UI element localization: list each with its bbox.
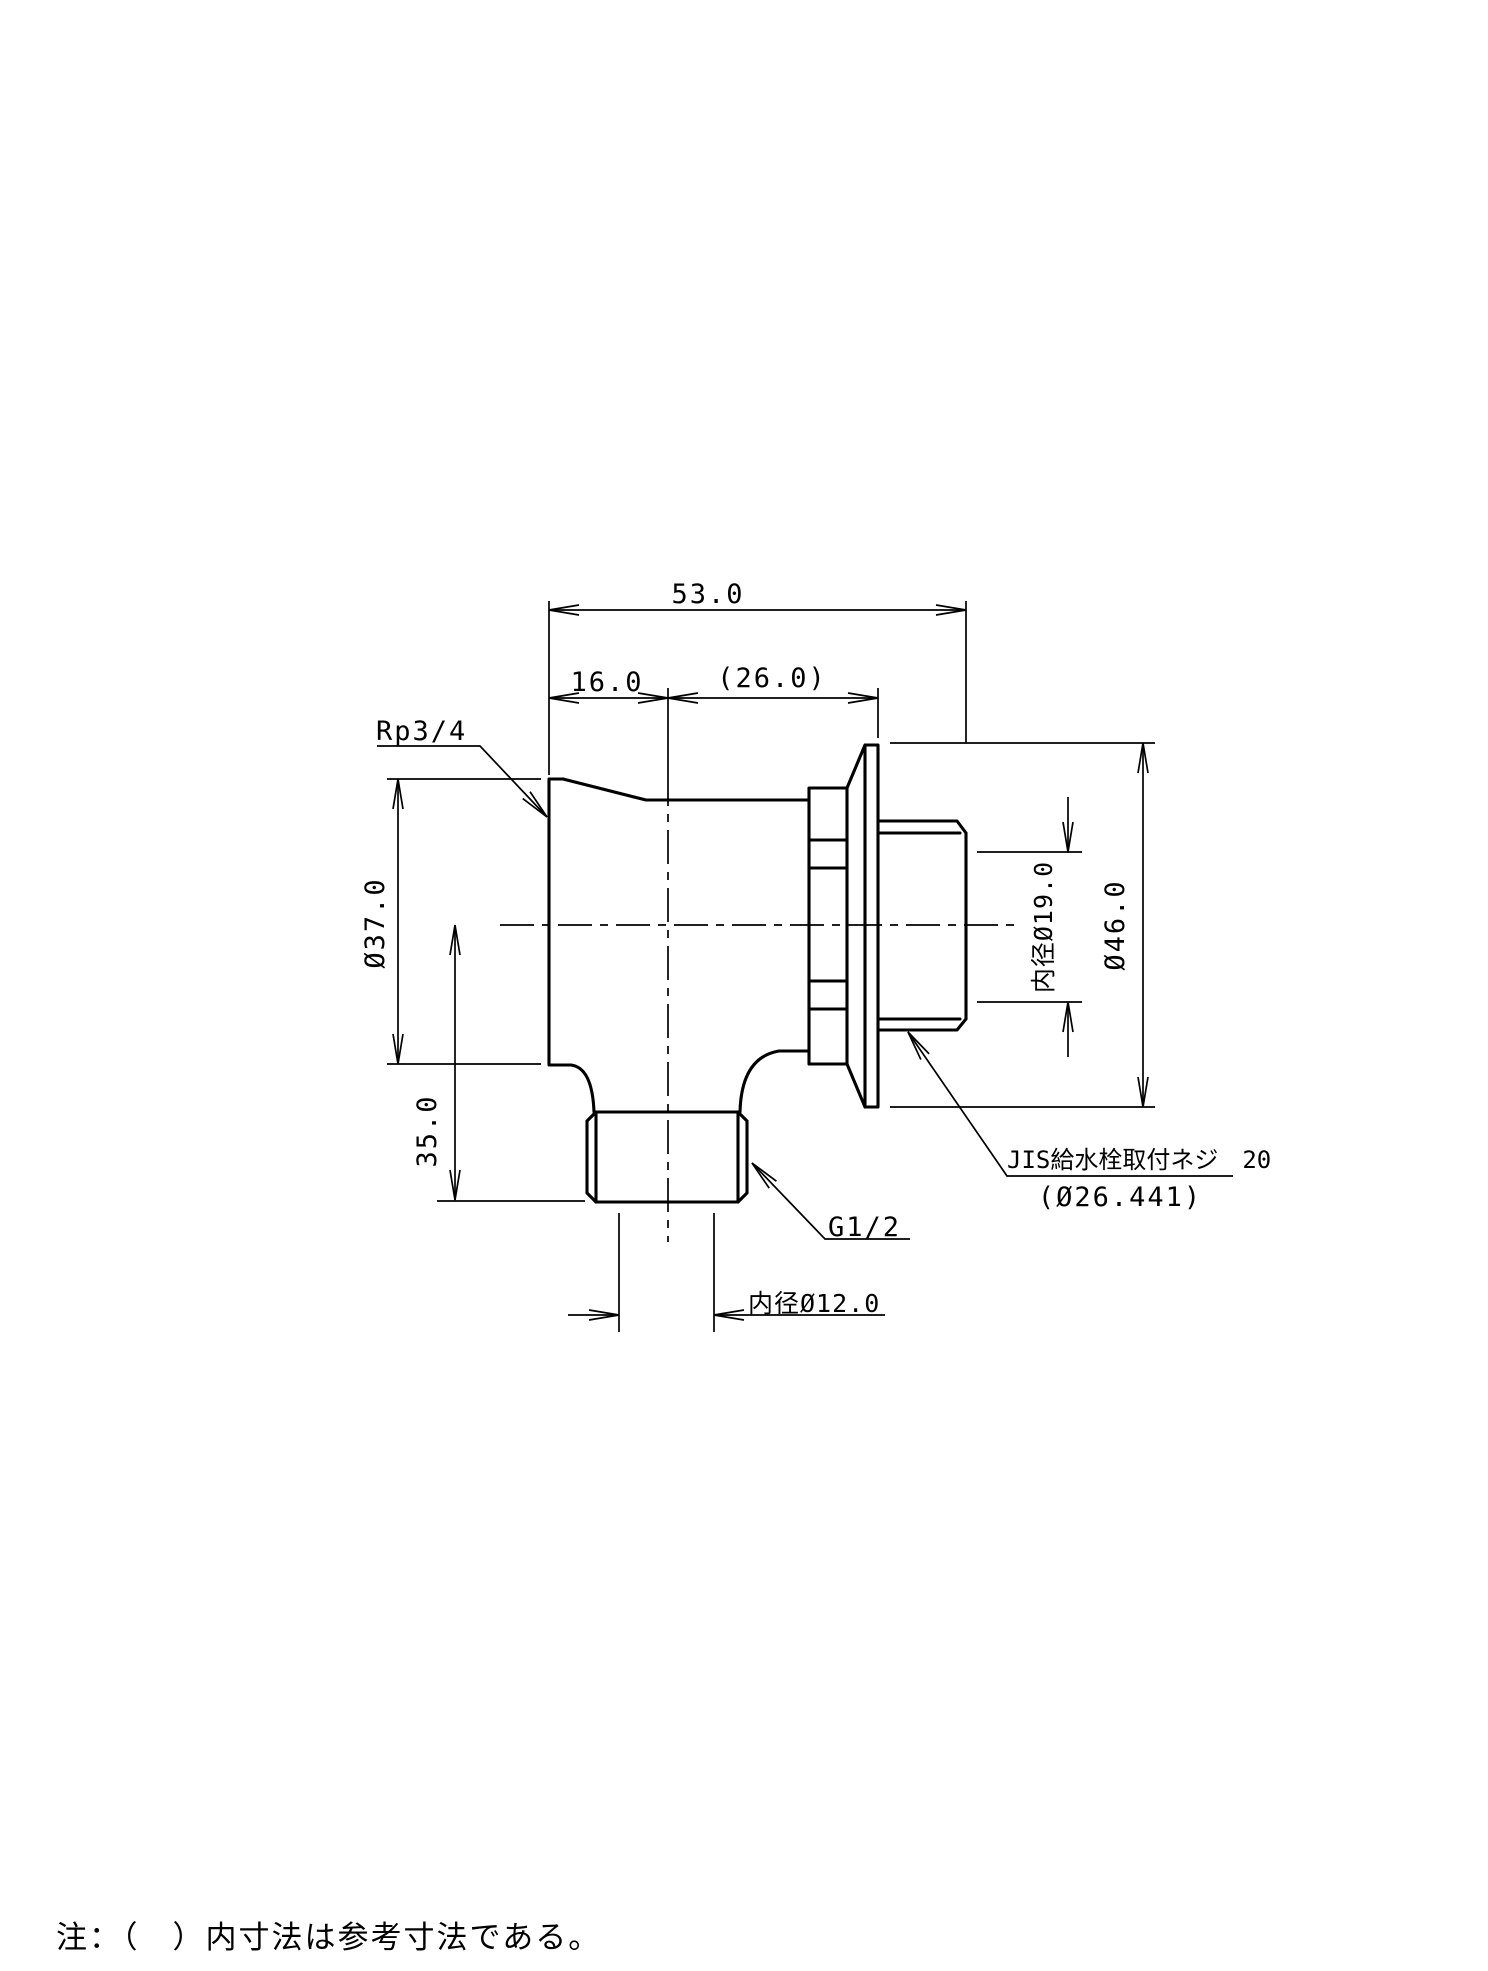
dim-text-35: 35.0 xyxy=(412,1094,443,1167)
label-jis-thread: JIS給水栓取付ネジ 20 xyxy=(1007,1146,1271,1174)
label-jis-thread-dia: (Ø26.441) xyxy=(1038,1182,1202,1213)
right-nipple-thread-lines xyxy=(878,833,960,1019)
dim-text-46: Ø46.0 xyxy=(1100,879,1131,970)
bottom-nipple-thread-lines xyxy=(596,1112,738,1202)
dim-text-16: 16.0 xyxy=(570,667,643,698)
dim-text-12: 内径Ø12.0 xyxy=(748,1289,880,1318)
collar-outline xyxy=(809,788,847,1064)
drawing-sheet: 53.0 16.0 (26.0) Ø37.0 35.0 内径Ø19.0 Ø46.… xyxy=(0,0,1488,1971)
label-g12: G1/2 xyxy=(828,1212,901,1243)
body-right-fillet xyxy=(740,1051,808,1112)
label-rp34: Rp3/4 xyxy=(376,716,467,747)
dim-text-19: 内径Ø19.0 xyxy=(1029,861,1058,993)
leader-rp34 xyxy=(377,746,547,817)
dim-text-26: (26.0) xyxy=(717,663,827,694)
technical-drawing: 53.0 16.0 (26.0) Ø37.0 35.0 内径Ø19.0 Ø46.… xyxy=(0,0,1488,1971)
drawing-note: 注：（ ）内寸法は参考寸法である。 xyxy=(56,1920,601,1956)
dim-text-53: 53.0 xyxy=(671,579,744,610)
flange-outline xyxy=(847,745,878,1107)
dimension-texts: 53.0 16.0 (26.0) Ø37.0 35.0 内径Ø19.0 Ø46.… xyxy=(360,579,1131,1318)
body-left-profile xyxy=(549,779,594,1112)
bottom-nipple-outline xyxy=(587,1112,747,1202)
dim-text-37: Ø37.0 xyxy=(360,877,391,968)
body-top-edge xyxy=(563,779,809,800)
part-outline xyxy=(549,745,966,1202)
centerlines xyxy=(500,688,1015,1242)
